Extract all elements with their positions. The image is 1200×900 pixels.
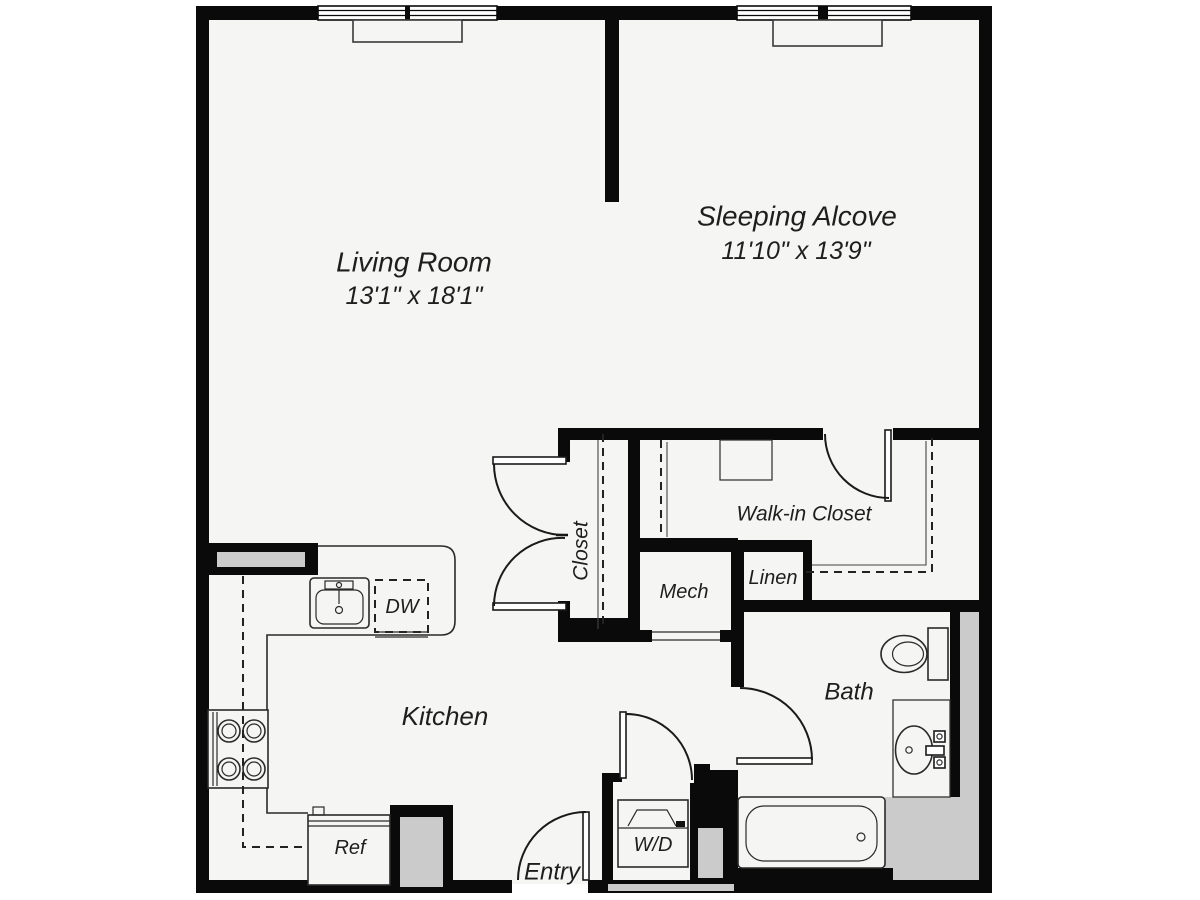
partition-wall: [605, 20, 619, 202]
entry-label: Entry: [524, 859, 582, 886]
refrigerator: Ref: [308, 807, 390, 885]
floor-plan-page: DW Ref W/D: [0, 0, 1200, 900]
vanity-sink-icon: [893, 700, 950, 797]
mech-label: Mech: [660, 581, 709, 603]
living-room-dimensions: 13'1" x 18'1": [345, 282, 483, 310]
closet-label: Closet: [570, 520, 593, 581]
kitchen-sink-icon: [310, 578, 369, 628]
living-room-label: Living Room: [336, 247, 492, 278]
window-sill: [353, 20, 462, 42]
linen-label: Linen: [749, 567, 798, 589]
kitchen-label: Kitchen: [402, 701, 489, 731]
window-sill: [773, 20, 882, 46]
window-mullion: [818, 6, 828, 20]
refrigerator-label: Ref: [334, 837, 368, 859]
walk-in-closet-label: Walk-in Closet: [737, 503, 873, 526]
window-mullion: [405, 6, 410, 20]
washer-dryer-icon: W/D: [618, 800, 688, 867]
stove-icon: [208, 710, 268, 788]
sleeping-alcove-label: Sleeping Alcove: [697, 201, 897, 232]
dishwasher-label: DW: [385, 596, 420, 618]
floor-plan: DW Ref W/D: [0, 0, 1200, 900]
washer-dryer-label: W/D: [634, 834, 673, 856]
bath-label: Bath: [824, 679, 873, 706]
apartment-floor: [205, 18, 985, 884]
sleeping-alcove-dimensions: 11'10" x 13'9": [721, 237, 871, 265]
tub-right-shading: [885, 797, 979, 880]
